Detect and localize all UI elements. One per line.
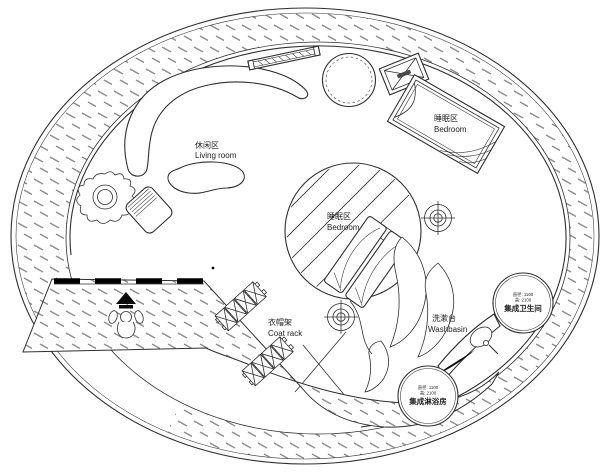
shower-pod: 直径: 1100 高: 2100 集成淋浴房 — [398, 366, 458, 426]
bathroom-pod-dim1: 直径: 1100 — [513, 291, 534, 297]
bathroom-pod-dim2: 高: 2100 — [515, 297, 532, 304]
console-shelf — [248, 46, 320, 70]
label-washbasin-en: Washbasin — [428, 325, 467, 334]
label-coat-rack-zh: 衣帽架 — [268, 317, 292, 327]
floor-plan-canvas: 直径: 1100 高: 2100 集成卫生间 直径: 1100 高: 2100 … — [0, 0, 611, 473]
label-bedroom-center-zh: 睡眠区 — [327, 212, 351, 221]
label-coat-rack-en: Coat rack — [268, 329, 303, 338]
floor-plan-page: 直径: 1100 高: 2100 集成卫生间 直径: 1100 高: 2100 … — [0, 0, 611, 473]
plan-dot — [212, 267, 215, 270]
bathroom-pod-name: 集成卫生间 — [503, 303, 542, 313]
label-bedroom-upper-en: Bedroom — [434, 125, 467, 134]
coffee-table — [168, 162, 244, 193]
partition-line-left — [295, 332, 346, 392]
ring-white-sector — [12, 350, 205, 473]
label-living-room-en: Living room — [195, 151, 237, 160]
shower-pod-dim2: 高: 2100 — [420, 390, 437, 397]
label-washbasin-zh: 洗漱台 — [432, 313, 456, 323]
label-bedroom-center-en: Bedroom — [327, 223, 360, 232]
potted-plant — [77, 172, 135, 224]
shower-pod-dim1: 直径: 1100 — [418, 384, 439, 390]
fixture-crosshair-upper — [421, 201, 455, 235]
label-bedroom-upper-zh: 睡眠区 — [434, 114, 458, 123]
shower-pod-name: 集成淋浴房 — [408, 396, 447, 406]
label-living-room-zh: 休闲区 — [195, 140, 219, 150]
round-table — [323, 54, 376, 107]
bathroom-pod: 直径: 1100 高: 2100 集成卫生间 — [493, 273, 553, 333]
